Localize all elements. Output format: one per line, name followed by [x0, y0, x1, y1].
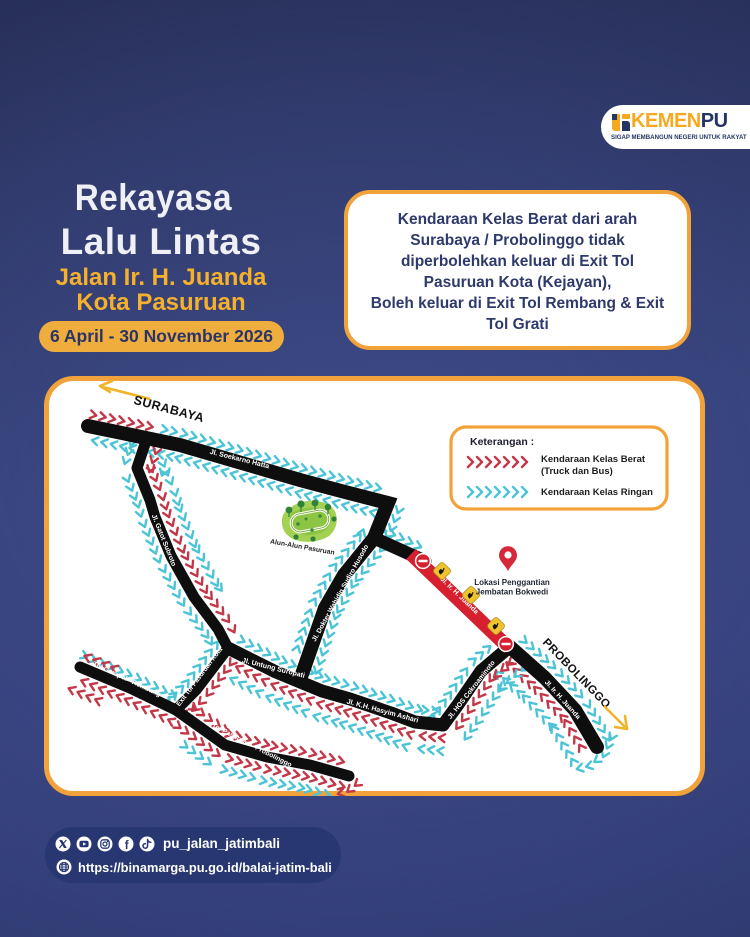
svg-text:Kendaraan Kelas Berat: Kendaraan Kelas Berat: [541, 454, 646, 465]
svg-text:f: f: [125, 840, 129, 852]
svg-text:Keterangan :: Keterangan :: [470, 436, 534, 448]
svg-text:Kendaraan Kelas Ringan: Kendaraan Kelas Ringan: [541, 487, 653, 498]
svg-text:Jembatan Bokwedi: Jembatan Bokwedi: [476, 588, 548, 597]
svg-text:(Truck dan Bus): (Truck dan Bus): [541, 466, 613, 477]
svg-text:Lokasi Penggantian: Lokasi Penggantian: [474, 578, 550, 587]
